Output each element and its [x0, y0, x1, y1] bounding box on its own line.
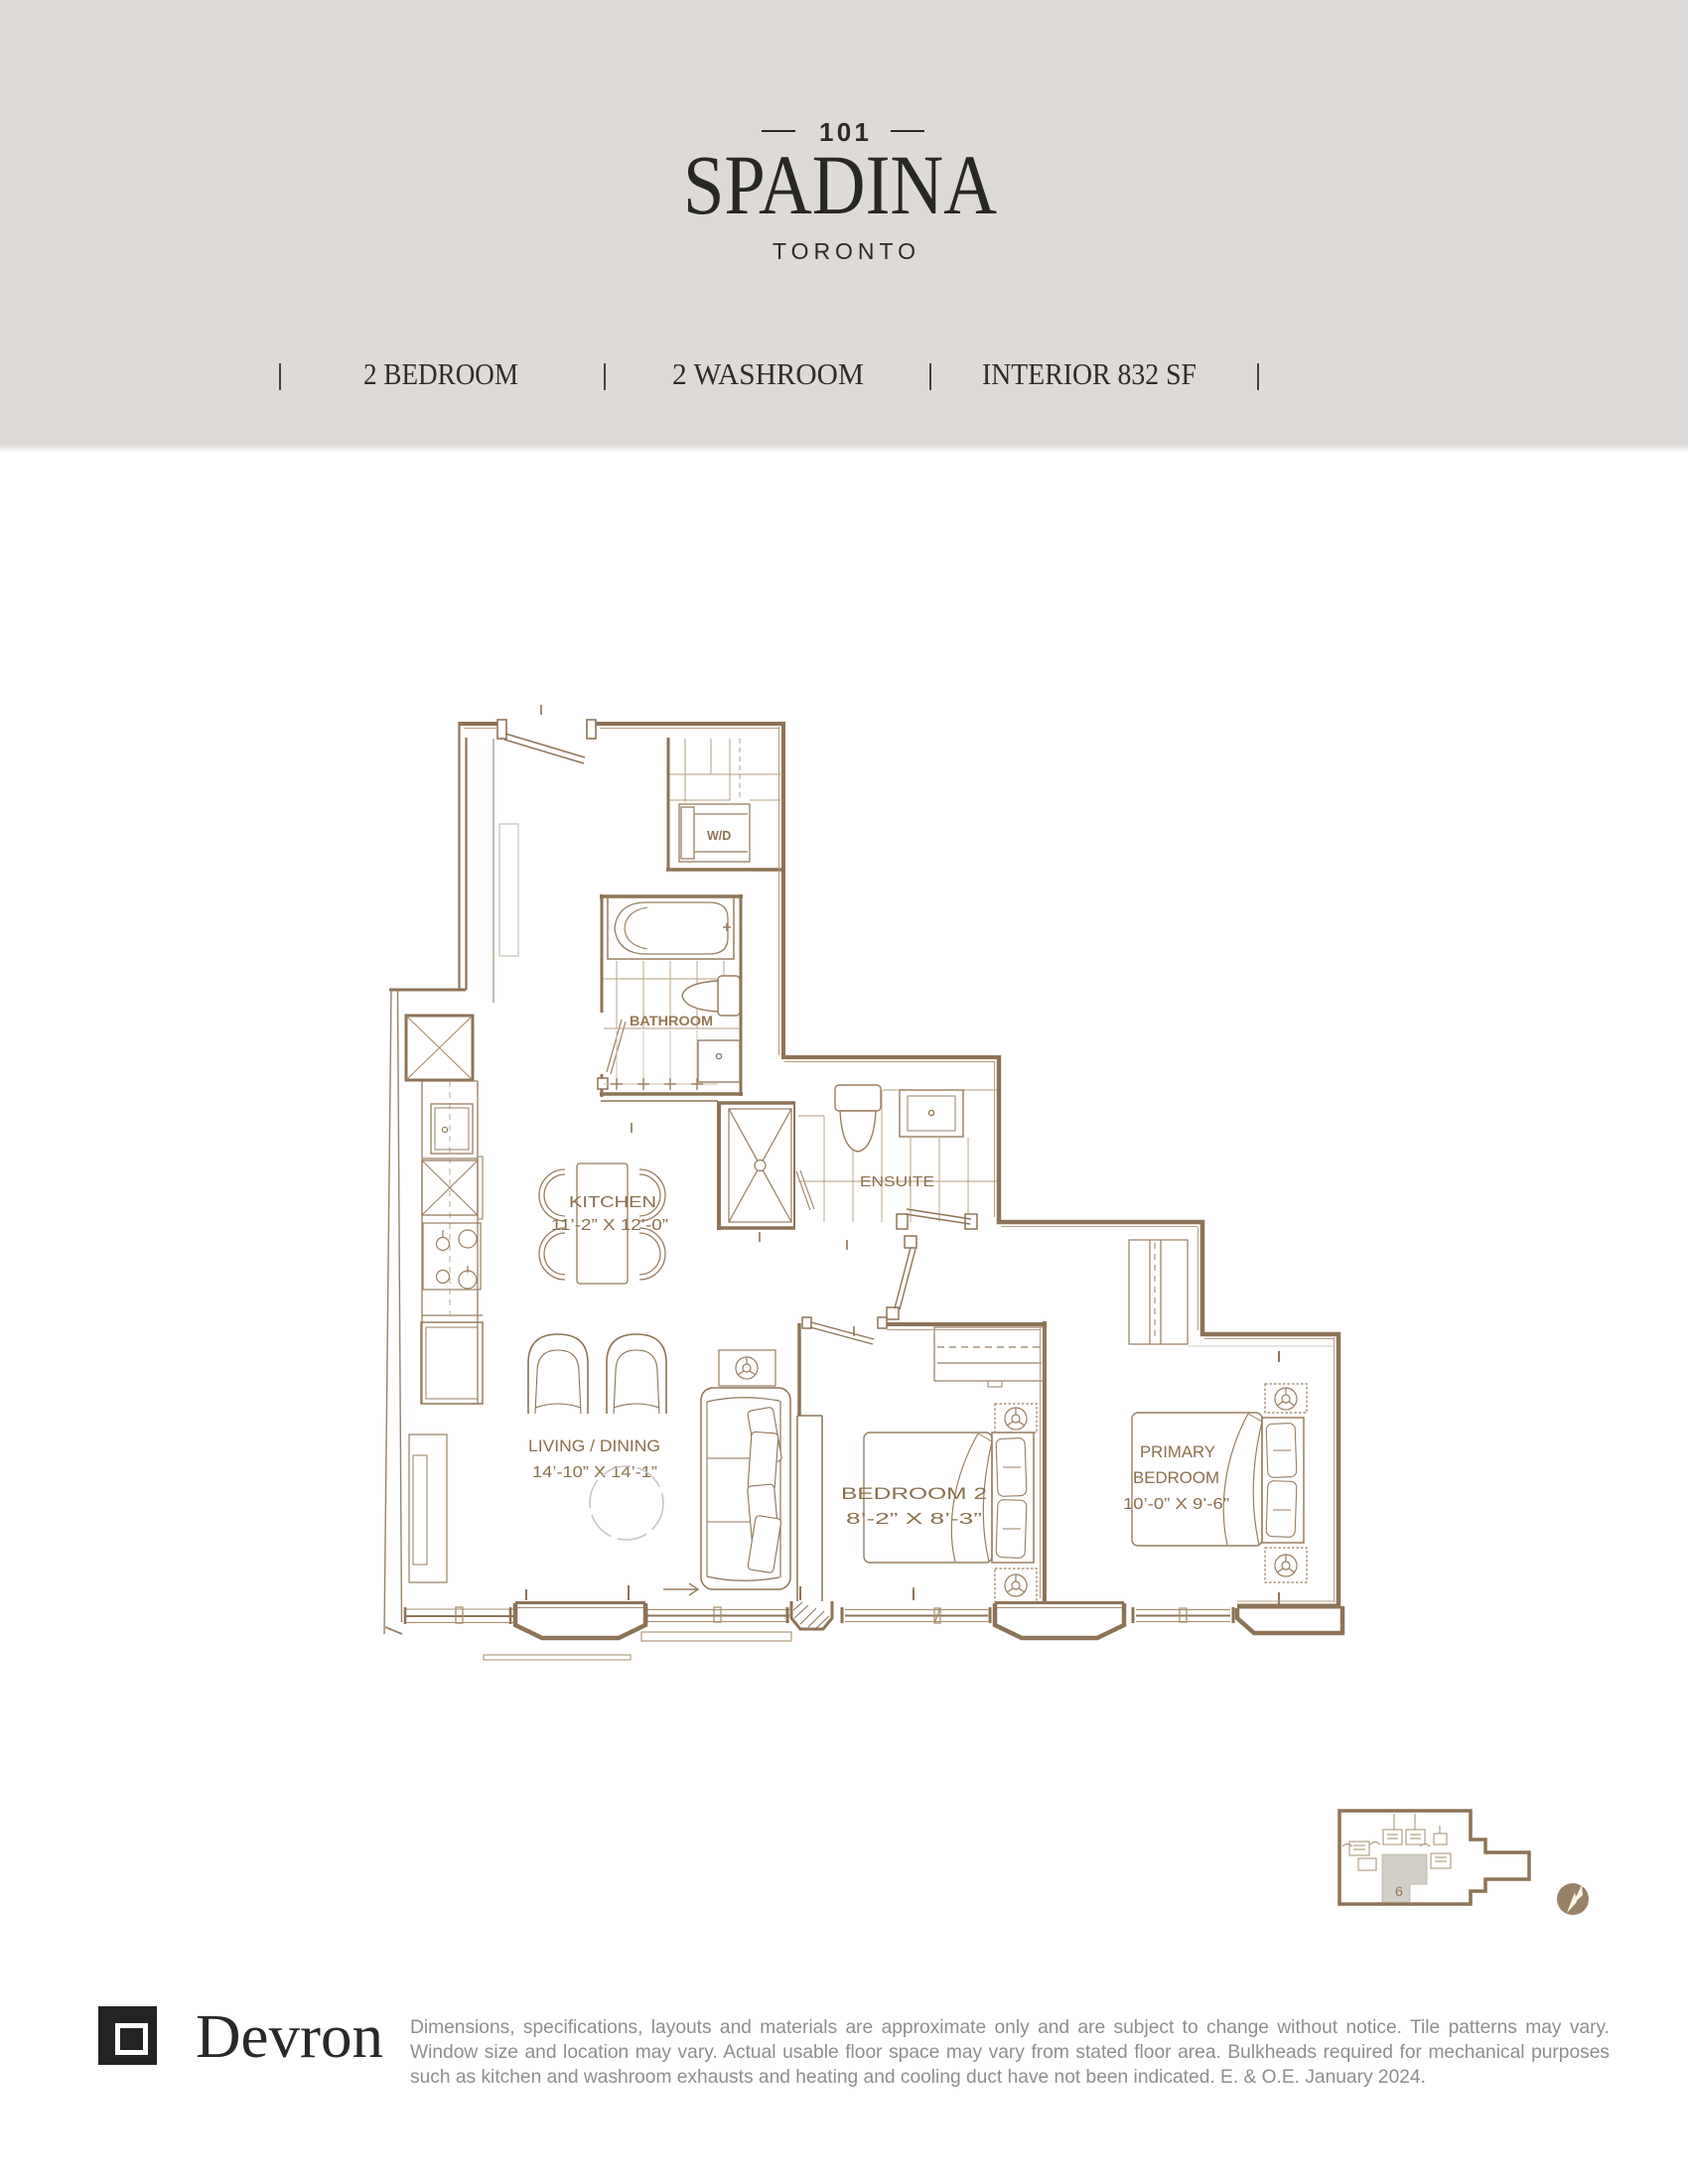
svg-text:14’-10” X 14’-1”: 14’-10” X 14’-1” [532, 1464, 657, 1481]
svg-text:2 WASHROOM: 2 WASHROOM [672, 356, 864, 391]
svg-text:SPADINA: SPADINA [683, 137, 997, 232]
svg-text:8’-2” X 8’-3”: 8’-2” X 8’-3” [846, 1511, 982, 1528]
svg-text:BEDROOM: BEDROOM [1133, 1469, 1219, 1487]
svg-text:LIVING / DINING: LIVING / DINING [528, 1437, 660, 1455]
svg-text:11’-2” X 12’-0”: 11’-2” X 12’-0” [551, 1217, 668, 1234]
svg-text:6: 6 [1395, 1883, 1403, 1899]
svg-text:2 BEDROOM: 2 BEDROOM [363, 356, 518, 391]
svg-text:BEDROOM 2: BEDROOM 2 [841, 1485, 987, 1503]
svg-text:ENSUITE: ENSUITE [860, 1174, 934, 1190]
svg-text:KITCHEN: KITCHEN [569, 1194, 656, 1211]
svg-text:TORONTO: TORONTO [773, 238, 915, 264]
svg-text:10’-0” X 9’-6”: 10’-0” X 9’-6” [1123, 1496, 1229, 1513]
svg-text:Devron: Devron [196, 2003, 383, 2071]
svg-text:PRIMARY: PRIMARY [1140, 1443, 1215, 1461]
svg-text:INTERIOR 832 SF: INTERIOR 832 SF [982, 356, 1196, 391]
svg-text:W/D: W/D [707, 829, 731, 843]
svg-text:BATHROOM: BATHROOM [630, 1014, 713, 1028]
